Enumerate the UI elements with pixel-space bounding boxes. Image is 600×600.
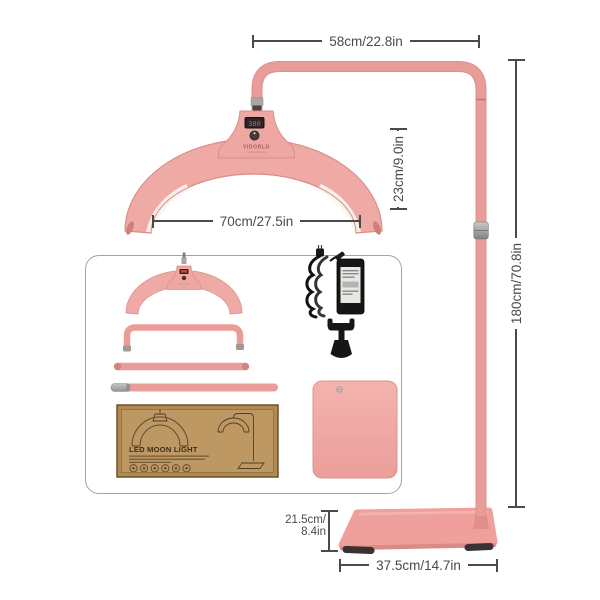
head-connector: [251, 98, 263, 107]
dim-label: 70cm/27.5in: [220, 214, 294, 229]
dim-label: 8.4in: [281, 527, 326, 539]
dimension-base-depth-label: 21.5cm/ 8.4in: [281, 515, 326, 538]
base-foot-right: [468, 547, 490, 548]
accessories-inset-box: [85, 255, 402, 494]
dimension-arm-width: 58cm/22.8in: [252, 33, 480, 49]
dim-line: [254, 40, 322, 42]
dimension-lamp-height: 23cm/9.0in: [389, 128, 407, 210]
dim-label: 58cm/22.8in: [329, 34, 403, 49]
dim-line: [328, 512, 330, 550]
head-mount: [218, 111, 294, 158]
base-foot-left: [346, 550, 371, 551]
floor-base: [342, 511, 494, 551]
dim-tick: [390, 208, 407, 210]
dim-line: [468, 564, 496, 566]
led-display-value: 380: [248, 120, 261, 128]
dim-label: 23cm/9.0in: [391, 136, 406, 202]
dim-tick: [321, 550, 338, 552]
dim-line: [397, 130, 399, 131]
led-display: [245, 118, 264, 129]
dim-line: [410, 40, 478, 42]
brand-label: VIDORLO: [243, 145, 270, 151]
dim-line: [341, 564, 369, 566]
dim-tick: [478, 35, 480, 48]
dim-label: 21.5cm/: [281, 515, 326, 527]
dim-line: [300, 220, 359, 222]
dim-line: [515, 61, 517, 238]
dim-tick: [508, 506, 525, 508]
dim-tick: [496, 559, 498, 572]
dim-line: [154, 220, 213, 222]
product-photo-stage: 380 VIDORLO: [0, 0, 600, 600]
height-adjust-collar: [474, 222, 489, 239]
dim-line: [515, 329, 517, 506]
dim-label: 37.5cm/14.7in: [376, 558, 461, 573]
control-knob: [250, 131, 259, 140]
dimension-stand-height: 180cm/70.8in: [507, 59, 525, 508]
dimension-lamp-width: 70cm/27.5in: [152, 213, 361, 229]
dim-tick: [359, 215, 361, 228]
dim-label: 180cm/70.8in: [509, 243, 524, 324]
dimension-base-width: 37.5cm/14.7in: [339, 557, 498, 573]
